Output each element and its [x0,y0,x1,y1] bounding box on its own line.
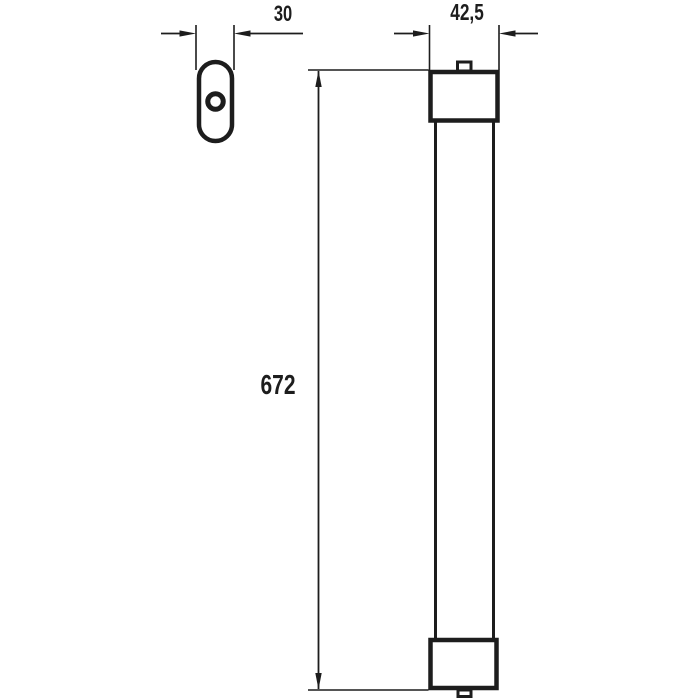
dimension-label-side-width: 42,5 [450,1,484,26]
side-view-drawing [431,62,498,697]
top-end-cap [431,72,498,121]
end-view-drawing [199,62,232,141]
dimension-side-width: 42,5 [394,1,538,70]
bottom-mounting-clip [458,690,471,697]
arrowhead-right-pointing-icon [413,30,430,36]
arrowhead-up-pointing-icon [315,71,321,88]
arrowhead-left-pointing-icon [234,30,251,36]
arrowhead-down-pointing-icon [315,673,321,690]
top-mounting-clip [458,62,472,71]
bottom-end-cap [431,640,497,688]
dimension-label-end-width: 30 [274,2,293,27]
dimension-end-width: 30 [161,2,303,70]
dimension-label-side-length: 672 [260,370,295,401]
arrowhead-right-pointing-icon [180,30,197,36]
technical-drawing-canvas: 30 42,5 672 [0,0,700,700]
drawing-area: 30 42,5 672 [0,0,700,700]
arrowhead-left-pointing-icon [499,30,516,36]
end-view-mounting-hole [208,94,224,110]
dimension-side-length: 672 [260,70,428,690]
